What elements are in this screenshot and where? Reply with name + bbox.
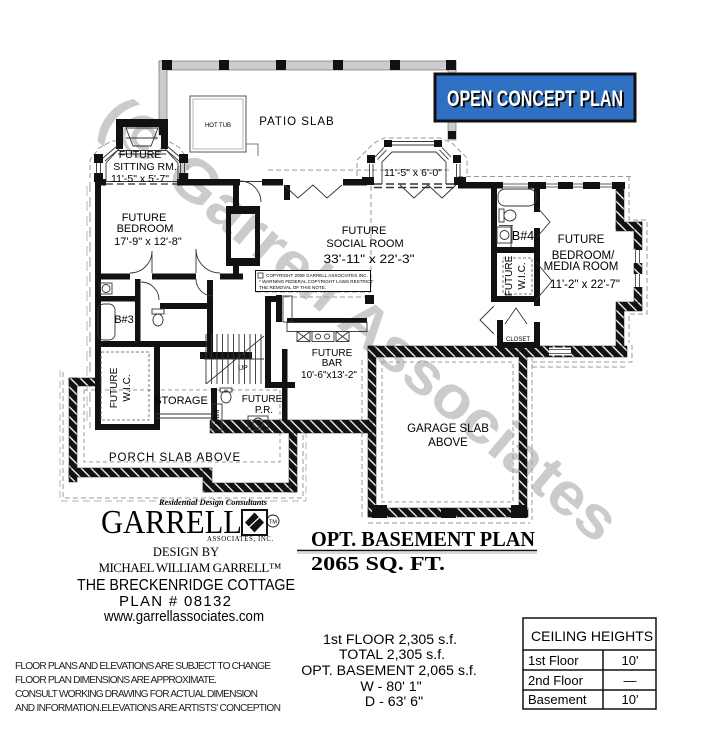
svg-text:FUTURE: FUTURE <box>242 394 283 405</box>
svg-text:BAR: BAR <box>322 358 343 369</box>
svg-text:AND INFORMATION.ELEVATIONS ARE: AND INFORMATION.ELEVATIONS ARE ARTISTS' … <box>15 703 281 714</box>
svg-text:CEILING HEIGHTS: CEILING HEIGHTS <box>531 628 653 644</box>
svg-text:33'-11" x 22'-3": 33'-11" x 22'-3" <box>324 254 415 266</box>
svg-text:TM: TM <box>269 520 277 526</box>
svg-text:COPYRIGHT 2008 GARRELL ASSOCIA: COPYRIGHT 2008 GARRELL ASSOCIATES INC. <box>266 273 368 278</box>
svg-text:ABOVE: ABOVE <box>428 437 468 449</box>
svg-text:LINEN: LINEN <box>215 409 221 424</box>
svg-text:1st Floor: 1st Floor <box>528 653 579 668</box>
svg-text:OPEN CONCEPT PLAN: OPEN CONCEPT PLAN <box>447 86 623 111</box>
svg-text:2065 SQ. FT.: 2065 SQ. FT. <box>311 554 445 575</box>
svg-text:* WARNING FEDERAL COPYRIGHT LA: * WARNING FEDERAL COPYRIGHT LAWS RESTRIC… <box>259 279 373 284</box>
svg-text:GARAGE SLAB: GARAGE SLAB <box>407 423 489 435</box>
svg-text:D - 63' 6": D - 63' 6" <box>365 694 423 710</box>
svg-text:THE REMOVAL OF THIS NOTE.: THE REMOVAL OF THIS NOTE. <box>259 285 326 290</box>
svg-text:CONSULT WORKING DRAWING FOR AC: CONSULT WORKING DRAWING FOR ACTUAL DIMEN… <box>15 689 258 700</box>
svg-text:THE BRECKENRIDGE COTTAGE: THE BRECKENRIDGE COTTAGE <box>77 577 295 594</box>
svg-text:FUTURE: FUTURE <box>342 225 387 237</box>
svg-text:OPT. BASEMENT 2,065 s.f.: OPT. BASEMENT 2,065 s.f. <box>301 663 477 679</box>
svg-text:UP: UP <box>238 365 248 372</box>
svg-text:TOTAL 2,305 s.f.: TOTAL 2,305 s.f. <box>339 647 445 663</box>
svg-text:SITTING RM.: SITTING RM. <box>113 161 177 173</box>
svg-text:CLOSET: CLOSET <box>506 337 530 343</box>
svg-text:FUTURE: FUTURE <box>504 255 515 296</box>
svg-text:BEDROOM: BEDROOM <box>117 223 174 235</box>
svg-text:PATIO SLAB: PATIO SLAB <box>259 116 334 128</box>
svg-text:www.garrellassociates.com: www.garrellassociates.com <box>103 609 264 625</box>
svg-text:SOCIAL ROOM: SOCIAL ROOM <box>326 238 403 250</box>
svg-text:17'-9" x 12'-8": 17'-9" x 12'-8" <box>114 236 182 248</box>
svg-text:PLAN # 08132: PLAN # 08132 <box>119 593 231 610</box>
svg-text:11'-5" x 6'-0": 11'-5" x 6'-0" <box>384 167 442 179</box>
svg-text:FLOOR PLANS AND ELEVATIONS ARE: FLOOR PLANS AND ELEVATIONS ARE SUBJECT T… <box>15 661 271 672</box>
svg-text:W.I.C.: W.I.C. <box>517 262 528 289</box>
svg-text:B#3: B#3 <box>114 314 134 326</box>
svg-text:HOT TUB: HOT TUB <box>205 123 231 129</box>
svg-text:FUTURE: FUTURE <box>558 234 605 246</box>
svg-text:MICHAEL WILLIAM GARRELL™: MICHAEL WILLIAM GARRELL™ <box>99 560 282 575</box>
svg-text:STORAGE: STORAGE <box>154 395 208 407</box>
svg-text:OPT. BASEMENT PLAN: OPT. BASEMENT PLAN <box>311 527 535 551</box>
svg-text:11'-2" x 22'-7": 11'-2" x 22'-7" <box>550 279 620 291</box>
svg-text:10': 10' <box>622 692 639 707</box>
svg-text:P.R.: P.R. <box>255 405 273 416</box>
svg-text:W - 80' 1": W - 80' 1" <box>360 679 421 695</box>
svg-text:MEDIA ROOM: MEDIA ROOM <box>544 261 619 273</box>
svg-text:DESIGN BY: DESIGN BY <box>153 545 219 559</box>
svg-text:FLOOR PLAN DIMENSIONS ARE APPR: FLOOR PLAN DIMENSIONS ARE APPROXIMATE. <box>15 675 217 686</box>
svg-text:10'-6"x13'-2": 10'-6"x13'-2" <box>301 370 357 381</box>
svg-text:10': 10' <box>622 653 639 668</box>
svg-text:W.I.C.: W.I.C. <box>122 374 133 401</box>
svg-text:11'-5" x 5'-7": 11'-5" x 5'-7" <box>111 173 169 185</box>
svg-text:B#4: B#4 <box>512 229 534 243</box>
svg-text:ASSOCIATES, INC.: ASSOCIATES, INC. <box>207 536 274 543</box>
svg-text:FUTURE: FUTURE <box>109 367 120 408</box>
svg-text:2nd Floor: 2nd Floor <box>528 673 584 688</box>
svg-text:—: — <box>624 673 637 688</box>
svg-text:1st FLOOR 2,305 s.f.: 1st FLOOR 2,305 s.f. <box>323 632 457 648</box>
svg-text:PORCH SLAB ABOVE: PORCH SLAB ABOVE <box>109 452 241 464</box>
svg-text:FUTURE: FUTURE <box>119 149 162 161</box>
svg-text:Basement: Basement <box>528 692 587 707</box>
